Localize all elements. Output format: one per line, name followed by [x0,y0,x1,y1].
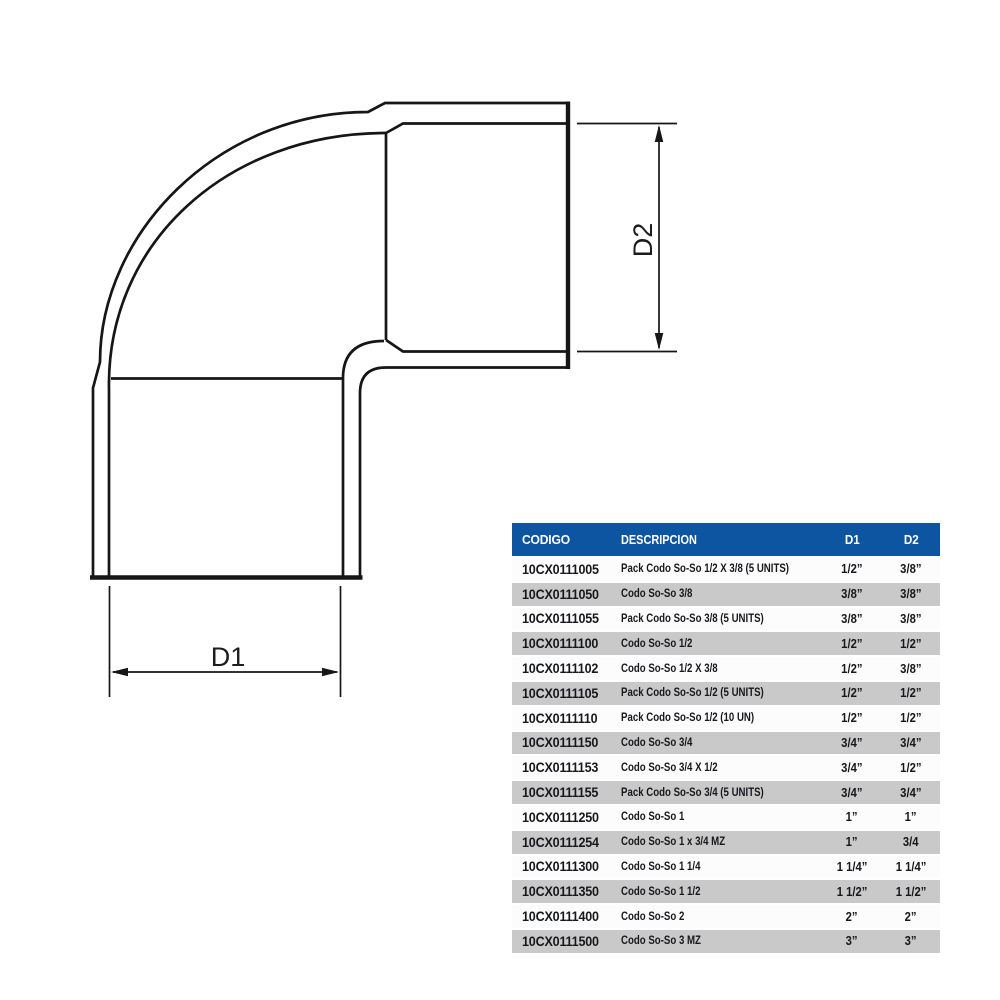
description-cell-text: Pack Codo So-So 1/2 (10 UN) [621,712,754,724]
code-cell-text: 10CX0111153 [522,760,598,775]
d2-arrow-up-icon [655,125,664,142]
d1-cell-text: 1/2” [841,662,862,676]
d1-cell-text: 1” [846,810,858,824]
code-cell: 10CX0111005 [512,558,610,581]
description-cell-text: Codo So-So 1 1/2 [621,886,700,898]
d2-cell-text: 1 1/2” [896,885,927,899]
d1-cell: 1” [822,831,882,854]
outer-shell-path [93,103,568,577]
d2-cell: 1” [882,806,940,829]
header-descripcion-label: DESCRIPCION [621,532,697,547]
code-cell: 10CX0111102 [512,657,610,680]
description-cell: Codo So-So 2 [610,905,822,928]
code-cell-text: 10CX0111254 [522,835,599,850]
code-cell: 10CX0111250 [512,806,610,829]
d2-cell-text: 1” [905,810,917,824]
code-cell: 10CX0111100 [512,632,610,655]
code-cell-text: 10CX0111500 [522,934,599,949]
description-cell: Codo So-So 1 1/4 [610,856,822,879]
description-cell-text: Pack Codo So-So 1/2 X 3/8 (5 UNITS) [621,563,789,575]
description-cell: Codo So-So 1 1/2 [610,880,822,903]
d2-cell: 1 1/2” [882,880,940,903]
d1-cell: 3/8” [822,583,882,606]
code-cell: 10CX0111153 [512,756,610,779]
table-row: 10CX0111155Pack Codo So-So 3/4 (5 UNITS)… [512,781,940,806]
d2-cell: 1/2” [882,682,940,705]
d1-cell-text: 1/2” [841,711,862,725]
description-cell: Codo So-So 1 [610,806,822,829]
d2-cell: 3/8” [882,657,940,680]
d2-cell-text: 3/8” [900,662,921,676]
d1-dimension: D1 [110,586,341,697]
spec-sheet-page: D2 D1 CODIGO DESCRIPCION D1 D2 10C [0,0,1000,1000]
d2-cell-text: 3/4” [900,786,921,800]
header-codigo-label: CODIGO [522,532,570,547]
description-cell-text: Codo So-So 1 1/4 [621,861,700,873]
d2-cell: 1/2” [882,707,940,730]
code-cell-text: 10CX0111300 [522,859,599,874]
code-cell-text: 10CX0111050 [522,587,599,602]
code-cell-text: 10CX0111250 [522,810,599,825]
d1-cell-text: 3/4” [841,736,862,750]
d1-cell-text: 1/2” [841,637,862,651]
header-d1-label: D1 [845,532,860,547]
description-cell: Codo So-So 1/2 X 3/8 [610,657,822,680]
table-row: 10CX0111102Codo So-So 1/2 X 3/81/2”3/8” [512,657,940,682]
d2-cell-text: 3/8” [900,587,921,601]
code-cell-text: 10CX0111105 [522,686,598,701]
description-cell: Codo So-So 3 MZ [610,930,822,953]
d1-cell: 1/2” [822,632,882,655]
description-cell: Pack Codo So-So 1/2 (5 UNITS) [610,682,822,705]
d2-cell-text: 2” [905,910,917,924]
d2-cell: 2” [882,905,940,928]
d2-cell-text: 3/4” [900,736,921,750]
d2-arrow-down-icon [655,333,664,350]
d2-cell: 3/4” [882,781,940,804]
description-cell-text: Codo So-So 2 [621,911,684,923]
description-cell: Codo So-So 1 x 3/4 MZ [610,831,822,854]
description-cell: Pack Codo So-So 3/4 (5 UNITS) [610,781,822,804]
code-cell-text: 10CX0111100 [522,636,598,651]
header-codigo: CODIGO [512,523,610,556]
d2-cell: 3” [882,930,940,953]
d1-cell-text: 1/2” [841,562,862,576]
code-cell: 10CX0111400 [512,905,610,928]
table-row: 10CX0111100Codo So-So 1/21/2”1/2” [512,632,940,657]
table-row: 10CX0111250Codo So-So 11”1” [512,806,940,831]
d1-cell-text: 1 1/2” [837,885,868,899]
table-row: 10CX0111350Codo So-So 1 1/21 1/2”1 1/2” [512,880,940,905]
table-row: 10CX0111500Codo So-So 3 MZ3”3” [512,930,940,955]
d1-cell: 3/8” [822,608,882,631]
description-cell-text: Codo So-So 3/8 [621,588,692,600]
d1-cell: 1/2” [822,657,882,680]
product-table: CODIGO DESCRIPCION D1 D2 10CX0111005Pack… [512,523,940,955]
description-cell-text: Codo So-So 3 MZ [621,935,701,947]
description-cell: Codo So-So 3/8 [610,583,822,606]
inner-bend-arc-path [109,133,386,577]
code-cell-text: 10CX0111055 [522,611,599,626]
table-row: 10CX0111005Pack Codo So-So 1/2 X 3/8 (5 … [512,558,940,583]
table-row: 10CX0111150Codo So-So 3/43/4”3/4” [512,732,940,757]
d2-cell: 3/4 [882,831,940,854]
code-cell: 10CX0111155 [512,781,610,804]
d1-arrow-left-icon [111,668,128,677]
table-row: 10CX0111254Codo So-So 1 x 3/4 MZ1”3/4 [512,831,940,856]
d1-cell: 1 1/4” [822,856,882,879]
table-header-row: CODIGO DESCRIPCION D1 D2 [512,523,940,558]
d2-cell-text: 3/8” [900,562,921,576]
d2-cell-text: 1/2” [900,686,921,700]
d1-cell-text: 3/4” [841,786,862,800]
code-cell-text: 10CX0111400 [522,909,599,924]
elbow-outline [90,102,568,578]
header-d2: D2 [882,523,940,556]
code-cell: 10CX0111500 [512,930,610,953]
d2-cell-text: 1 1/4” [896,860,927,874]
header-d1: D1 [822,523,882,556]
d1-cell: 3” [822,930,882,953]
table-row: 10CX0111400Codo So-So 22”2” [512,905,940,930]
description-cell: Pack Codo So-So 3/8 (5 UNITS) [610,608,822,631]
description-cell-text: Codo So-So 1/2 [621,638,692,650]
d1-cell: 1/2” [822,682,882,705]
d2-cell-text: 3/8” [900,612,921,626]
code-cell-text: 10CX0111155 [522,785,598,800]
code-cell-text: 10CX0111102 [522,661,598,676]
d1-cell-text: 3/4” [841,761,862,775]
description-cell-text: Codo So-So 1/2 X 3/8 [621,663,718,675]
code-cell: 10CX0111055 [512,608,610,631]
description-cell: Codo So-So 3/4 X 1/2 [610,756,822,779]
table-row: 10CX0111055Pack Codo So-So 3/8 (5 UNITS)… [512,608,940,633]
table-row: 10CX0111300Codo So-So 1 1/41 1/4”1 1/4” [512,856,940,881]
d1-cell: 1/2” [822,558,882,581]
header-d2-label: D2 [904,532,919,547]
d2-cell: 3/8” [882,608,940,631]
d1-arrow-right-icon [322,668,339,677]
d1-cell-text: 1 1/4” [837,860,868,874]
table-row: 10CX0111153Codo So-So 3/4 X 1/23/4”1/2” [512,756,940,781]
code-cell-text: 10CX0111150 [522,735,598,750]
d1-cell: 1 1/2” [822,880,882,903]
d2-cell-text: 1/2” [900,711,921,725]
d2-cell: 1 1/4” [882,856,940,879]
d1-cell: 3/4” [822,732,882,755]
code-cell-text: 10CX0111110 [522,711,597,726]
code-cell: 10CX0111110 [512,707,610,730]
d1-cell: 1/2” [822,707,882,730]
right-socket-inner-bottom-path [386,340,568,352]
d1-cell-text: 3/8” [841,612,862,626]
code-cell-text: 10CX0111350 [522,884,599,899]
description-cell: Codo So-So 1/2 [610,632,822,655]
d2-cell: 3/4” [882,732,940,755]
description-cell-text: Codo So-So 1 [621,811,684,823]
d2-cell-text: 3” [905,934,917,948]
description-cell: Pack Codo So-So 1/2 (10 UN) [610,707,822,730]
d1-cell-text: 2” [846,910,858,924]
description-cell-text: Codo So-So 1 x 3/4 MZ [621,836,725,848]
d2-cell-text: 1/2” [900,761,921,775]
description-cell: Codo So-So 3/4 [610,732,822,755]
code-cell: 10CX0111300 [512,856,610,879]
d2-cell: 3/8” [882,583,940,606]
d1-cell: 2” [822,905,882,928]
description-cell-text: Codo So-So 3/4 X 1/2 [621,762,718,774]
code-cell: 10CX0111150 [512,732,610,755]
d1-dimension-label: D1 [211,642,246,672]
d1-cell: 3/4” [822,756,882,779]
table-row: 10CX0111105Pack Codo So-So 1/2 (5 UNITS)… [512,682,940,707]
d1-cell-text: 3/8” [841,587,862,601]
right-socket-inner-top-path [386,124,568,134]
table-body: 10CX0111005Pack Codo So-So 1/2 X 3/8 (5 … [512,558,940,955]
description-cell-text: Pack Codo So-So 3/4 (5 UNITS) [621,787,764,799]
d1-cell-text: 3” [846,934,858,948]
d1-cell-text: 1/2” [841,686,862,700]
d2-cell-text: 1/2” [900,637,921,651]
code-cell: 10CX0111105 [512,682,610,705]
description-cell-text: Codo So-So 3/4 [621,737,692,749]
description-cell: Pack Codo So-So 1/2 X 3/8 (5 UNITS) [610,558,822,581]
description-cell-text: Pack Codo So-So 1/2 (5 UNITS) [621,687,764,699]
d2-cell: 1/2” [882,632,940,655]
d2-cell-text: 3/4 [903,835,919,849]
d2-cell: 3/8” [882,558,940,581]
d2-dimension: D2 [577,124,677,352]
description-cell-text: Pack Codo So-So 3/8 (5 UNITS) [621,613,764,625]
d2-dimension-label: D2 [628,223,658,258]
code-cell-text: 10CX0111005 [522,562,599,577]
code-cell: 10CX0111254 [512,831,610,854]
table-row: 10CX0111050Codo So-So 3/83/8”3/8” [512,583,940,608]
code-cell: 10CX0111350 [512,880,610,903]
d1-cell: 3/4” [822,781,882,804]
code-cell: 10CX0111050 [512,583,610,606]
d1-cell-text: 1” [846,835,858,849]
header-descripcion: DESCRIPCION [610,523,822,556]
d1-cell: 1” [822,806,882,829]
d2-cell: 1/2” [882,756,940,779]
table-row: 10CX0111110Pack Codo So-So 1/2 (10 UN)1/… [512,707,940,732]
